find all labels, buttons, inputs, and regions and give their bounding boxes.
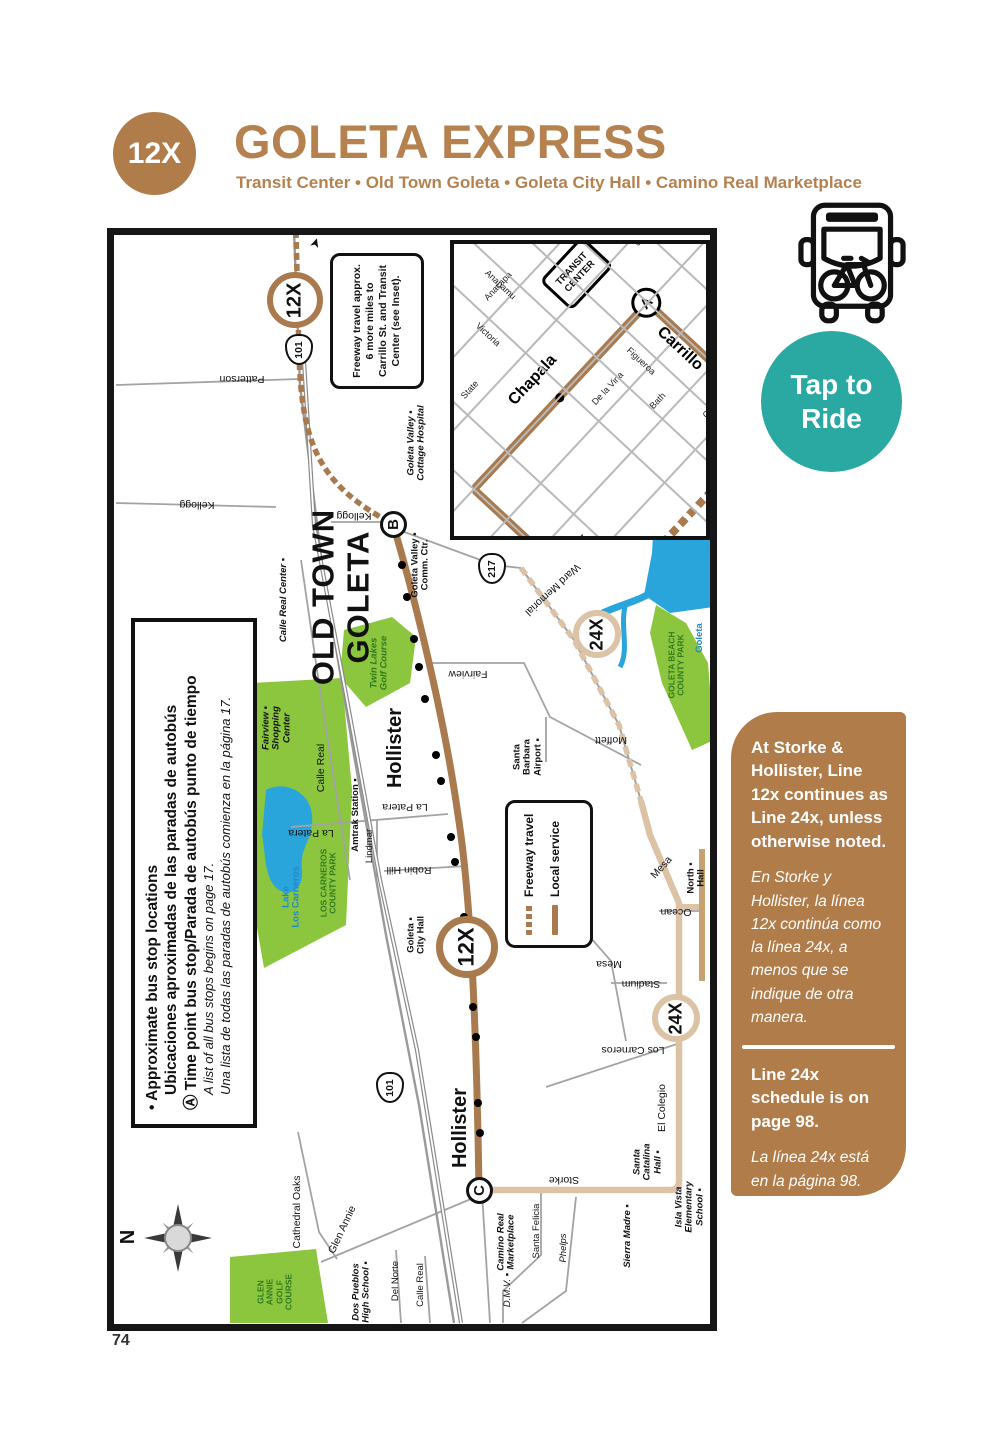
bus-stop-dot xyxy=(472,1033,480,1041)
map-label: La Patera xyxy=(382,800,428,812)
old-town-goleta-label: OLD TOWN GOLETA xyxy=(306,509,375,685)
map-label: Phelps xyxy=(559,1233,569,1262)
inset-route-arrellaga xyxy=(471,486,607,540)
page-number: 74 xyxy=(112,1332,130,1350)
freeway-note-text: Freeway travel approx. 6 more miles to C… xyxy=(330,253,424,389)
stop-legend-line3: Ⓐ Time point bus stop/Parada de autobús … xyxy=(182,636,201,1110)
route-badge-12X: 12X xyxy=(436,916,498,978)
map-label: Santa Felicia xyxy=(532,1204,542,1259)
bus-stop-dot xyxy=(469,1003,477,1011)
map-label: Calle Real xyxy=(416,1263,426,1307)
map-label: Santa Catalina Hall ▪ xyxy=(632,1144,663,1181)
sidebar-note-panel: At Storke & Hollister, Line 12x continue… xyxy=(731,712,906,1196)
legend-local-label: Local service xyxy=(548,821,562,897)
map-label: Los Carneros xyxy=(601,1043,664,1055)
map-label: Goleta Valley ▪ Comm. Ctr. xyxy=(411,532,432,597)
panel-divider xyxy=(742,1045,895,1049)
map-label: Fairview xyxy=(448,667,487,679)
route-badge-B: B xyxy=(380,511,407,538)
bus-stop-dot xyxy=(410,635,418,643)
freeway-note-box: Freeway travel approx. 6 more miles to C… xyxy=(330,253,424,390)
map-label: Sierra Madre ▪ xyxy=(623,1204,633,1268)
map-label: Calle Real xyxy=(316,744,328,792)
inset-street-label: State xyxy=(459,379,481,401)
inset-stop-dot xyxy=(708,358,710,371)
route-badge-C: C xyxy=(466,1177,493,1204)
map-label: GLEN ANNIE GOLF COURSE xyxy=(256,1274,293,1310)
map-label: North ▪ Hall xyxy=(687,862,708,893)
bus-stop-dot xyxy=(432,751,440,759)
tap-to-ride-line1: Tap to xyxy=(791,368,873,401)
map-label: Stadium xyxy=(622,977,661,989)
bus-stop-dot xyxy=(437,777,445,785)
inset-street-label: Canon Perdido xyxy=(593,240,644,248)
page-title: GOLETA EXPRESS xyxy=(234,114,667,169)
map-label: Lake Los Carneros xyxy=(282,866,303,927)
note-es: En Storke y Hollister, la línea 12x cont… xyxy=(751,866,889,1029)
map-label: GOLETA BEACH COUNTY PARK xyxy=(668,631,687,698)
stop-legend-line5: Una lista de todas las paradas de autobú… xyxy=(218,636,235,1095)
map-label: Isla Vista Elementary School ▪ xyxy=(674,1181,705,1232)
inset-street-label: Victoria xyxy=(474,321,503,349)
map-label: Amtrak Station ▪ xyxy=(351,778,361,852)
map-label: Kellogg xyxy=(179,498,214,510)
route-badge-24X: 24X xyxy=(573,610,621,658)
note-en: At Storke & Hollister, Line 12x continue… xyxy=(751,736,889,853)
bus-with-bike-icon xyxy=(793,200,911,330)
map-label: Lindmar xyxy=(365,829,375,863)
bus-stop-dot xyxy=(421,695,429,703)
map-label: La Patera xyxy=(288,826,334,838)
map-label: Camino Real Marketplace xyxy=(497,1213,518,1271)
route-badge-24X: 24X xyxy=(652,994,700,1042)
map-label: Calle Real Center ▪ xyxy=(279,558,289,642)
route-badge-12X: 12X xyxy=(267,272,323,328)
tap-to-ride-button[interactable]: Tap to Ride xyxy=(761,331,902,472)
map-label: Patterson xyxy=(220,372,265,384)
bus-stop-dot xyxy=(447,833,455,841)
map-label: Twin Lakes Golf Course xyxy=(370,636,391,690)
map-label: N xyxy=(117,1230,139,1244)
map-label: Robin Hill xyxy=(387,863,432,875)
map-label: Goleta xyxy=(695,623,705,653)
route-number-badge: 12X xyxy=(113,112,196,195)
map-label: Cathedral Oaks xyxy=(292,1176,304,1249)
bus-stop-dot xyxy=(476,1129,484,1137)
bus-stop-dot xyxy=(474,1099,482,1107)
compass-rose xyxy=(140,1200,216,1281)
map-legend: Freeway travel Local service xyxy=(505,800,593,948)
map-label: El Colegio xyxy=(657,1084,669,1132)
map-label: Fairview ▪ Shopping Center xyxy=(261,706,292,750)
stop-legend-line2: Ubicaciones aproximadas de las paradas d… xyxy=(162,636,181,1095)
map-label: LOS CARNEROS COUNTY PARK xyxy=(320,849,339,917)
bus-stop-dot xyxy=(398,561,406,569)
schedule-note-en: Line 24x schedule is on page 98. xyxy=(751,1063,889,1133)
local-service-swatch xyxy=(552,905,558,935)
stop-legend-line4: A list of all bus stops begins on page 1… xyxy=(201,636,218,1095)
schedule-note-es: La línea 24x está en la página 98. xyxy=(751,1146,889,1193)
inset-street-label: De la Vina xyxy=(590,370,626,407)
legend-freeway-label: Freeway travel xyxy=(522,814,536,897)
map-label: Ocean xyxy=(661,905,692,917)
freeway-travel-swatch xyxy=(526,905,532,935)
page-subtitle: Transit Center • Old Town Goleta • Golet… xyxy=(236,173,862,193)
stop-legend-line1: • Approximate bus stop locations xyxy=(143,636,162,1110)
map-label: Kellogg xyxy=(336,509,371,521)
map-label: Del Norte xyxy=(391,1261,401,1301)
bus-stop-dot xyxy=(415,663,423,671)
map-label: Santa Barbara Airport ▪ xyxy=(512,738,543,776)
inset-rotated: A TRANSIT CENTER 101 AnacapaStateChapala… xyxy=(450,240,710,540)
map-label: Storke xyxy=(549,1173,579,1185)
map-label: Goleta ▪ City Hall xyxy=(407,916,428,954)
bus-stop-legend: • Approximate bus stop locations Ubicaci… xyxy=(131,618,257,1128)
map-label: D.M.V. ▪ xyxy=(503,1273,513,1307)
page: 12X GOLETA EXPRESS Transit Center • Old … xyxy=(0,0,997,1440)
map-label: Goleta Valley ▪ Cottage Hospital xyxy=(407,405,428,480)
route-map: ➤ Freeway travel approx. 6 more miles to… xyxy=(107,228,717,1331)
map-label: Moffett xyxy=(595,733,627,745)
map-label: Hollister xyxy=(449,1088,471,1168)
tap-to-ride-line2: Ride xyxy=(801,402,862,435)
map-label: Hollister xyxy=(384,708,406,788)
downtown-inset-map: A TRANSIT CENTER 101 AnacapaStateChapala… xyxy=(450,240,710,540)
map-label: Mesa xyxy=(596,957,622,969)
bus-stop-dot xyxy=(451,858,459,866)
map-label: Dos Pueblos High School ▪ xyxy=(352,1261,373,1322)
